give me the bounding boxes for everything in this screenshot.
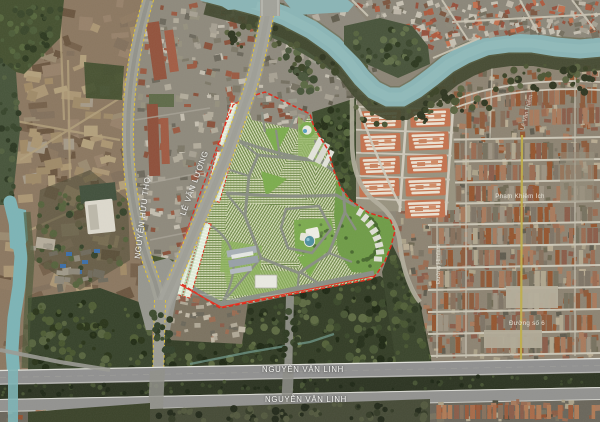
svg-text:Đường Himlam: Đường Himlam [436, 244, 442, 284]
svg-text:NGUYỄN VĂN LINH: NGUYỄN VĂN LINH [262, 365, 344, 374]
svg-text:NGUYỄN VĂN LINH: NGUYỄN VĂN LINH [265, 395, 347, 404]
svg-text:Phạm Khiêm Ích: Phạm Khiêm Ích [495, 193, 545, 200]
svg-text:Đường số 6: Đường số 6 [509, 320, 545, 327]
